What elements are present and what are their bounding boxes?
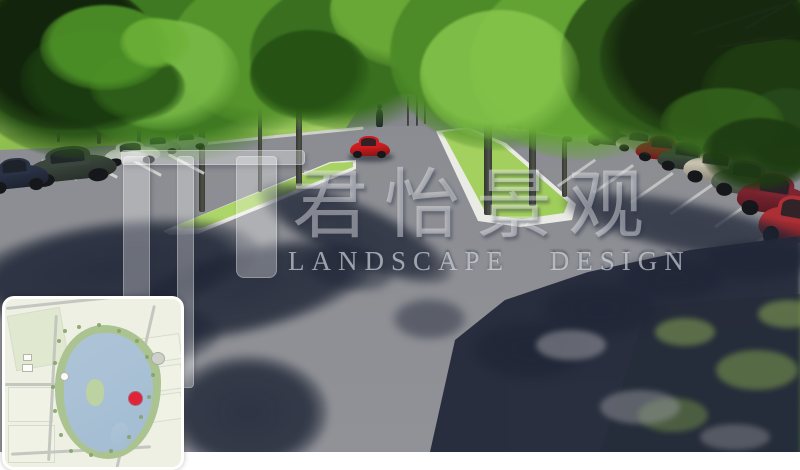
map-tree-dot (109, 449, 113, 453)
map-road (6, 296, 157, 310)
map-plaza-circle (60, 372, 69, 381)
inset-site-map (2, 296, 184, 470)
watermark-title-cn: 君怡景观 (292, 158, 672, 252)
map-structure-circle (151, 352, 165, 365)
watermark-logo-bar-right (236, 156, 277, 278)
map-tree-dot (135, 339, 139, 343)
map-tree-dot (127, 435, 131, 439)
map-tree-dot (117, 329, 121, 333)
map-building (22, 364, 33, 372)
map-tree-dot (53, 361, 57, 365)
map-tree-dot (53, 409, 57, 413)
map-tree-dot (51, 385, 55, 389)
map-tree-dot (69, 449, 73, 453)
map-tree-dot (145, 355, 149, 359)
map-tree-dot (139, 415, 143, 419)
map-tree-dot (63, 329, 67, 333)
map-location-marker (129, 392, 142, 405)
map-tree-dot (59, 433, 63, 437)
map-tree-dot (151, 373, 155, 377)
map-island (86, 379, 104, 406)
watermark-subtitle-en: LANDSCAPE DESIGN (288, 246, 708, 277)
map-tree-dot (147, 395, 151, 399)
map-field (8, 387, 53, 422)
rendering-canvas: 君怡景观 LANDSCAPE DESIGN (0, 0, 800, 470)
map-tree-dot (77, 325, 81, 329)
map-tree-dot (97, 323, 101, 327)
map-building (23, 354, 32, 361)
map-tree-dot (57, 339, 61, 343)
map-tree-dot (89, 453, 93, 457)
